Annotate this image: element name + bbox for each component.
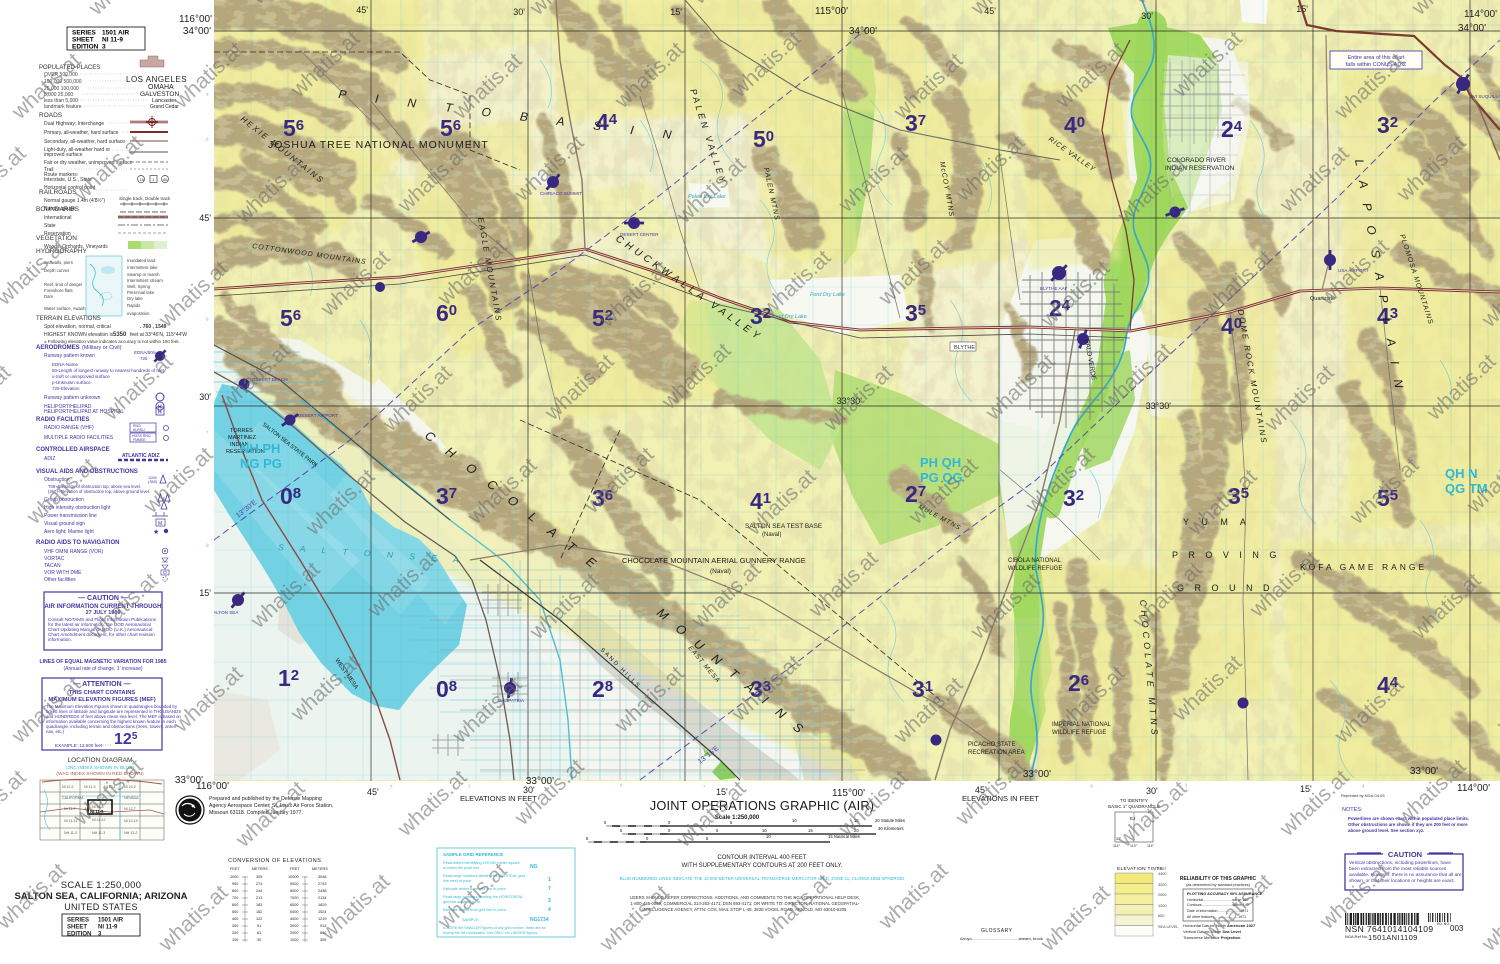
svg-text:EDNA-Name: EDNA-Name — [52, 362, 79, 367]
svg-text:725-Elevation: 725-Elevation — [52, 386, 80, 391]
svg-text:Ford Dry Lake: Ford Dry Lake — [810, 292, 845, 298]
svg-text:Dry lake: Dry lake — [127, 296, 143, 301]
svg-text:45': 45' — [356, 5, 368, 15]
svg-text:PICACHO STATE: PICACHO STATE — [968, 742, 1015, 748]
svg-text:3048: 3048 — [318, 875, 326, 879]
svg-text:116°00': 116°00' — [179, 14, 212, 25]
svg-text:122: 122 — [256, 917, 262, 921]
svg-text:EDITION: EDITION — [67, 932, 91, 938]
svg-text:9000: 9000 — [290, 882, 298, 886]
svg-text:VORTAC: VORTAC — [44, 556, 65, 562]
svg-text:100: 100 — [232, 938, 238, 942]
svg-text:1829: 1829 — [318, 903, 326, 907]
svg-text:feet at 33°46'N, 115°44'W: feet at 33°46'N, 115°44'W — [130, 332, 187, 338]
svg-text:2438: 2438 — [318, 889, 326, 893]
svg-text:CAUTION: CAUTION — [1388, 850, 1422, 859]
svg-text:10: 10 — [792, 818, 797, 823]
svg-text:244: 244 — [256, 889, 262, 893]
svg-text:GLOSSARY: GLOSSARY — [981, 928, 1013, 934]
svg-text:LOS ANGELES: LOS ANGELES — [126, 75, 187, 84]
svg-text:⁸: ⁸ — [206, 543, 209, 550]
svg-text:MULTIPLE RADIO FACILITIES: MULTIPLE RADIO FACILITIES — [44, 435, 114, 441]
svg-text:NI 11-9: NI 11-9 — [102, 37, 123, 44]
svg-text:274: 274 — [256, 882, 262, 886]
svg-text:33°30': 33°30' — [1146, 401, 1172, 411]
svg-text:152: 152 — [256, 910, 262, 914]
svg-text:CALIFORNIA: CALIFORNIA — [62, 796, 84, 800]
svg-text:CIBOLA NATIONAL: CIBOLA NATIONAL — [1008, 558, 1062, 564]
svg-text:SALTON SEA: SALTON SEA — [210, 610, 239, 615]
svg-text:WILDLIFE REFUGE: WILDLIFE REFUGE — [1008, 566, 1062, 572]
svg-text:61: 61 — [257, 931, 261, 935]
svg-text:Dual Highway; Interchange: Dual Highway; Interchange — [44, 121, 104, 127]
svg-text:DESERT AIRPORT: DESERT AIRPORT — [298, 413, 338, 418]
svg-text:CONVERSION OF ELEVATIONS: CONVERSION OF ELEVATIONS — [228, 858, 321, 864]
svg-text:114°: 114° — [1113, 844, 1121, 848]
svg-text:(Annual rate of change, 1' inc: (Annual rate of change, 1' increase) — [63, 666, 142, 672]
svg-text:⁹: ⁹ — [1090, 784, 1093, 791]
svg-text:1524: 1524 — [318, 910, 326, 914]
svg-text:nas, etc.): nas, etc.) — [46, 729, 65, 734]
svg-text:10: 10 — [140, 177, 145, 182]
svg-text:ADIZ: ADIZ — [44, 456, 55, 462]
svg-text:ELEVATION TINTS: ELEVATION TINTS — [1117, 866, 1163, 872]
svg-text:AERODROMES: AERODROMES — [36, 345, 80, 351]
svg-text:Aero light; Marine light: Aero light; Marine light — [44, 529, 94, 535]
svg-text:p-Unknown surface: p-Unknown surface — [52, 380, 91, 385]
svg-text:Inundated land: Inundated land — [127, 258, 156, 263]
svg-text:20 Statute Miles: 20 Statute Miles — [875, 818, 905, 823]
svg-text:BOUNDARIES: BOUNDARIES — [36, 206, 80, 213]
svg-text:⁵: ⁵ — [206, 137, 209, 144]
svg-text:SHEET: SHEET — [72, 37, 94, 44]
svg-text:Well, Spring: Well, Spring — [127, 284, 151, 289]
svg-text:1501ANI1109: 1501ANI1109 — [1368, 933, 1418, 942]
svg-text:TERRAIN ELEVATIONS: TERRAIN ELEVATIONS — [36, 316, 101, 322]
svg-text:BLUE NUMBERED LINES INDICATE T: BLUE NUMBERED LINES INDICATE THE 10,000 … — [620, 876, 905, 881]
svg-text:BLYTHE: BLYTHE — [954, 345, 975, 351]
svg-text:IGNORE the SMALLER figures of: IGNORE the SMALLER figures of any grid n… — [443, 926, 547, 930]
svg-text:725: 725 — [140, 356, 148, 361]
svg-text:Primary, all-weather, hard sur: Primary, all-weather, hard surface — [44, 130, 119, 136]
svg-text:NH 12-2: NH 12-2 — [124, 831, 137, 835]
svg-text:METERS: METERS — [252, 867, 268, 871]
svg-text:1200: 1200 — [1158, 904, 1166, 908]
svg-text:OMAHA: OMAHA — [148, 84, 174, 91]
svg-text:CHIRIACO SUMMIT: CHIRIACO SUMMIT — [540, 191, 582, 196]
svg-text:Grand Cedar: Grand Cedar — [150, 104, 179, 110]
svg-text:RADIO AIDS TO NAVIGATION: RADIO AIDS TO NAVIGATION — [36, 540, 119, 546]
svg-text:quadrangle, including terrain: quadrangle, including terrain and obstru… — [46, 724, 178, 729]
svg-text:500: 500 — [232, 910, 238, 914]
svg-text:CONTOUR INTERVAL 400 FEET: CONTOUR INTERVAL 400 FEET — [717, 855, 806, 861]
svg-text:300: 300 — [232, 924, 238, 928]
svg-text:x-Soft or unimproved surface: x-Soft or unimproved surface — [52, 374, 110, 379]
svg-text:200: 200 — [232, 931, 238, 935]
svg-text:information.: information. — [48, 637, 72, 642]
svg-text:7000: 7000 — [290, 896, 298, 900]
svg-text:(Naval): (Naval) — [710, 568, 731, 575]
svg-text:evaporation: evaporation — [127, 311, 150, 316]
svg-text:H: H — [158, 410, 162, 416]
svg-text:WILDLIFE REFUGE: WILDLIFE REFUGE — [1052, 730, 1106, 736]
svg-text:UNITED STATES: UNITED STATES — [64, 902, 138, 912]
svg-text:Normal gauge 1.4m (4'8½"): Normal gauge 1.4m (4'8½") — [44, 197, 105, 204]
svg-text:QH N: QH N — [1445, 466, 1478, 481]
svg-text:ED. NO.: ED. NO. — [1437, 922, 1450, 926]
svg-text:RELIABILITY OF THIS GRAPHIC: RELIABILITY OF THIS GRAPHIC — [1180, 876, 1257, 882]
svg-text:114°00': 114°00' — [1464, 9, 1497, 20]
svg-text:NEVADA: NEVADA — [124, 796, 139, 800]
svg-text:HIGHEST KNOWN elevation is: HIGHEST KNOWN elevation is — [44, 332, 114, 338]
svg-text:FMMEE: FMMEE — [133, 438, 146, 442]
svg-text:★: ★ — [153, 528, 159, 536]
svg-text:NI 12-7: NI 12-7 — [124, 807, 136, 811]
svg-text:NOTES:: NOTES: — [1342, 807, 1363, 813]
svg-text:RECREATION AREA: RECREATION AREA — [968, 750, 1025, 756]
svg-text:86: 86 — [163, 177, 168, 182]
svg-text:4000: 4000 — [290, 917, 298, 921]
svg-text:EDNA/50/x: EDNA/50/x — [134, 350, 157, 355]
svg-text:above ground level. See sectio: above ground level. See section xyz. — [1348, 828, 1424, 833]
svg-text:± Following elevation value in: ± Following elevation value indicates ac… — [44, 339, 180, 344]
svg-text:Arroyo........................: Arroyo..................................… — [960, 936, 1043, 941]
svg-text:15': 15' — [199, 588, 211, 598]
svg-text:VHF OMNI RANGE (VOR): VHF OMNI RANGE (VOR) — [44, 549, 104, 555]
svg-text:003: 003 — [1450, 924, 1464, 933]
svg-text:10: 10 — [766, 834, 771, 839]
svg-text:Visual ground sign: Visual ground sign — [44, 521, 85, 527]
svg-text:800: 800 — [232, 889, 238, 893]
svg-text:3200: 3200 — [1158, 883, 1166, 887]
svg-text:Reprinted by NGA 04-05: Reprinted by NGA 04-05 — [1341, 793, 1385, 798]
svg-text:600: 600 — [1158, 914, 1164, 918]
svg-text:NG1734: NG1734 — [530, 917, 549, 923]
svg-text:Perennial lake: Perennial lake — [127, 290, 155, 295]
svg-text:⁶: ⁶ — [206, 317, 209, 324]
svg-text:CONTROLLED AIRSPACE: CONTROLLED AIRSPACE — [36, 447, 110, 453]
svg-text:600: 600 — [232, 903, 238, 907]
svg-text:ROADS: ROADS — [39, 112, 63, 119]
svg-text:Runway pattern unknown: Runway pattern unknown — [44, 395, 101, 401]
svg-text:34°00': 34°00' — [849, 26, 877, 37]
svg-text:KLRSU: KLRSU — [133, 428, 145, 432]
svg-text:WITH SUPPLEMENTARY CONTOURS AT: WITH SUPPLEMENTARY CONTOURS AT 200 FEET … — [682, 863, 843, 869]
svg-text:NH 11-3: NH 11-3 — [92, 831, 105, 835]
svg-text:landmark feature: landmark feature — [44, 104, 82, 110]
svg-text:Other facilities: Other facilities — [44, 577, 76, 583]
svg-text:⁶: ⁶ — [620, 783, 623, 790]
svg-text:30': 30' — [199, 392, 211, 402]
svg-text:Runway pattern known: Runway pattern known — [44, 353, 95, 359]
svg-text:SHEET: SHEET — [67, 925, 87, 931]
svg-text:2000: 2000 — [1158, 893, 1166, 897]
svg-text:Secondary, all-weather, hard s: Secondary, all-weather, hard surface — [44, 139, 125, 145]
svg-text:3: 3 — [548, 898, 551, 904]
svg-text:NI 11-9: NI 11-9 — [98, 925, 118, 931]
svg-text:EDITION: EDITION — [72, 44, 99, 51]
svg-text:NG: NG — [530, 864, 538, 870]
svg-text:Intermittent lake: Intermittent lake — [127, 265, 158, 270]
svg-text:7: 7 — [548, 886, 551, 892]
svg-text:METERS: METERS — [312, 867, 328, 871]
svg-text:International: International — [44, 215, 72, 221]
svg-text:Reef, limit of danger: Reef, limit of danger — [44, 282, 83, 287]
svg-text:SERIES: SERIES — [67, 918, 89, 924]
svg-text:114°: 114° — [1147, 844, 1155, 848]
svg-text:900: 900 — [232, 882, 238, 886]
svg-text:finding the full coordinates.: finding the full coordinates. Use ONLY t… — [443, 931, 538, 935]
svg-text:NI 12-10: NI 12-10 — [124, 819, 138, 823]
svg-text:4400: 4400 — [1158, 872, 1166, 876]
svg-text:1000: 1000 — [230, 875, 238, 879]
svg-text:1501 AIR: 1501 AIR — [102, 30, 130, 37]
svg-text:INTELLIGENCE AGENCY, ATTN: COS: INTELLIGENCE AGENCY, ATTN: COS, MAIL STO… — [642, 907, 847, 912]
svg-text:10000: 10000 — [288, 875, 299, 879]
svg-text:DESERT CENTER: DESERT CENTER — [620, 232, 659, 237]
svg-text:34°00': 34°00' — [1458, 23, 1486, 34]
svg-text:2134: 2134 — [318, 896, 326, 900]
svg-text:4: 4 — [548, 907, 551, 913]
svg-text:NGA Ref No.: NGA Ref No. — [1345, 934, 1368, 939]
svg-text:34°00': 34°00' — [183, 26, 211, 37]
svg-text:. 760 , 1549: . 760 , 1549 — [140, 324, 167, 330]
svg-text:700: 700 — [232, 896, 238, 900]
svg-text:6000: 6000 — [290, 903, 298, 907]
svg-text:EXAMPLE: 12,500 feet: EXAMPLE: 12,500 feet — [55, 743, 103, 748]
svg-text:Dam: Dam — [44, 294, 53, 299]
svg-text:NH PH: NH PH — [240, 441, 280, 456]
svg-text:Spot elevation, normal, critic: Spot elevation, normal, critical — [44, 324, 111, 330]
svg-text:183: 183 — [256, 903, 262, 907]
svg-text:ATLANTIC ADIZ: ATLANTIC ADIZ — [122, 453, 160, 459]
svg-text:114°00': 114°00' — [1457, 783, 1490, 794]
svg-text:116°00': 116°00' — [196, 781, 229, 792]
svg-text:SERIES: SERIES — [72, 30, 97, 37]
svg-text:30 Kilometers: 30 Kilometers — [878, 826, 904, 831]
svg-text:15': 15' — [670, 7, 682, 17]
svg-text:SEA LEVEL: SEA LEVEL — [1158, 925, 1178, 929]
svg-text:NI 11-2: NI 11-2 — [62, 785, 74, 789]
svg-text:91: 91 — [257, 924, 261, 928]
svg-text:10: 10 — [762, 828, 767, 833]
svg-text:15': 15' — [1296, 4, 1308, 14]
svg-text:NH 11-2: NH 11-2 — [64, 831, 77, 835]
svg-text:213: 213 — [256, 896, 262, 900]
svg-text:5350: 5350 — [113, 332, 127, 338]
svg-text:Rapids: Rapids — [127, 303, 140, 308]
svg-text:in which the point lies: in which the point lies — [443, 866, 479, 870]
svg-text:FEET: FEET — [1158, 867, 1168, 871]
svg-text:Single track, Double track: Single track, Double track — [119, 196, 171, 201]
svg-text:SAMPLE GRID REFERENCE: SAMPLE GRID REFERENCE — [443, 852, 503, 857]
svg-text:Water surface, Awash: Water surface, Awash — [44, 306, 86, 311]
svg-text:Read letters identifying 100,0: Read letters identifying 100,000 meter s… — [443, 861, 520, 865]
svg-text:FEET: FEET — [290, 867, 300, 871]
svg-text:5000: 5000 — [290, 910, 298, 914]
svg-text:45': 45' — [367, 787, 379, 797]
svg-text:305: 305 — [320, 938, 326, 942]
svg-text:(Military or Civil): (Military or Civil) — [82, 345, 122, 351]
svg-text:M: M — [158, 521, 162, 527]
svg-text:45': 45' — [199, 213, 211, 223]
svg-text:3: 3 — [102, 44, 106, 51]
svg-text:SCALE 1:250,000: SCALE 1:250,000 — [61, 880, 142, 891]
svg-text:RADIO RANGE (VHF): RADIO RANGE (VHF) — [44, 425, 94, 431]
svg-text:400: 400 — [232, 917, 238, 921]
svg-text:JOINT OPERATIONS GRAPHIC (AIR): JOINT OPERATIONS GRAPHIC (AIR) — [650, 798, 875, 813]
svg-text:1501 AIR: 1501 AIR — [98, 918, 124, 924]
svg-text:30: 30 — [257, 938, 261, 942]
svg-text:CHOCOLATE MOUNTAIN AERIAL GUNN: CHOCOLATE MOUNTAIN AERIAL GUNNERY RANGE — [622, 556, 806, 565]
svg-text:30': 30' — [513, 7, 525, 17]
svg-text:30': 30' — [1141, 11, 1153, 21]
svg-text:2000: 2000 — [290, 931, 298, 935]
svg-text:State: State — [44, 223, 56, 229]
svg-text:8000: 8000 — [290, 889, 298, 893]
svg-text:VOR WITH DME: VOR WITH DME — [44, 570, 82, 576]
svg-text:Foreshore flats: Foreshore flats — [44, 288, 73, 293]
svg-text:improved surface: improved surface — [44, 152, 83, 158]
svg-text:NG PG: NG PG — [240, 456, 282, 471]
svg-text:1: 1 — [548, 877, 551, 883]
svg-text:TORRES: TORRES — [230, 428, 253, 434]
svg-text:FEET: FEET — [230, 867, 240, 871]
svg-text:Intermittent stream: Intermittent stream — [127, 278, 163, 283]
svg-text:Vertical obstructions, inclu: Vertical obstructions, including powerli… — [1349, 860, 1451, 866]
svg-text:LINES OF EQUAL MAGNETIC VARIAT: LINES OF EQUAL MAGNETIC VARIATION FOR 19… — [39, 659, 166, 665]
svg-text:TO IDENTIFY: TO IDENTIFY — [1120, 798, 1148, 803]
svg-text:3000: 3000 — [290, 924, 298, 928]
svg-text:RADIO FACILITIES: RADIO FACILITIES — [36, 417, 89, 423]
svg-text:1000: 1000 — [290, 938, 298, 942]
svg-text:TACAN: TACAN — [44, 563, 61, 569]
svg-text:⁵: ⁵ — [390, 784, 393, 791]
svg-text:2743: 2743 — [318, 882, 326, 886]
svg-text:Swamp or marsh: Swamp or marsh — [127, 272, 160, 277]
svg-text:⁵: ⁵ — [206, 92, 209, 99]
svg-text:305: 305 — [256, 875, 262, 879]
svg-text:15: 15 — [808, 828, 813, 833]
svg-text:115°00': 115°00' — [815, 6, 848, 17]
